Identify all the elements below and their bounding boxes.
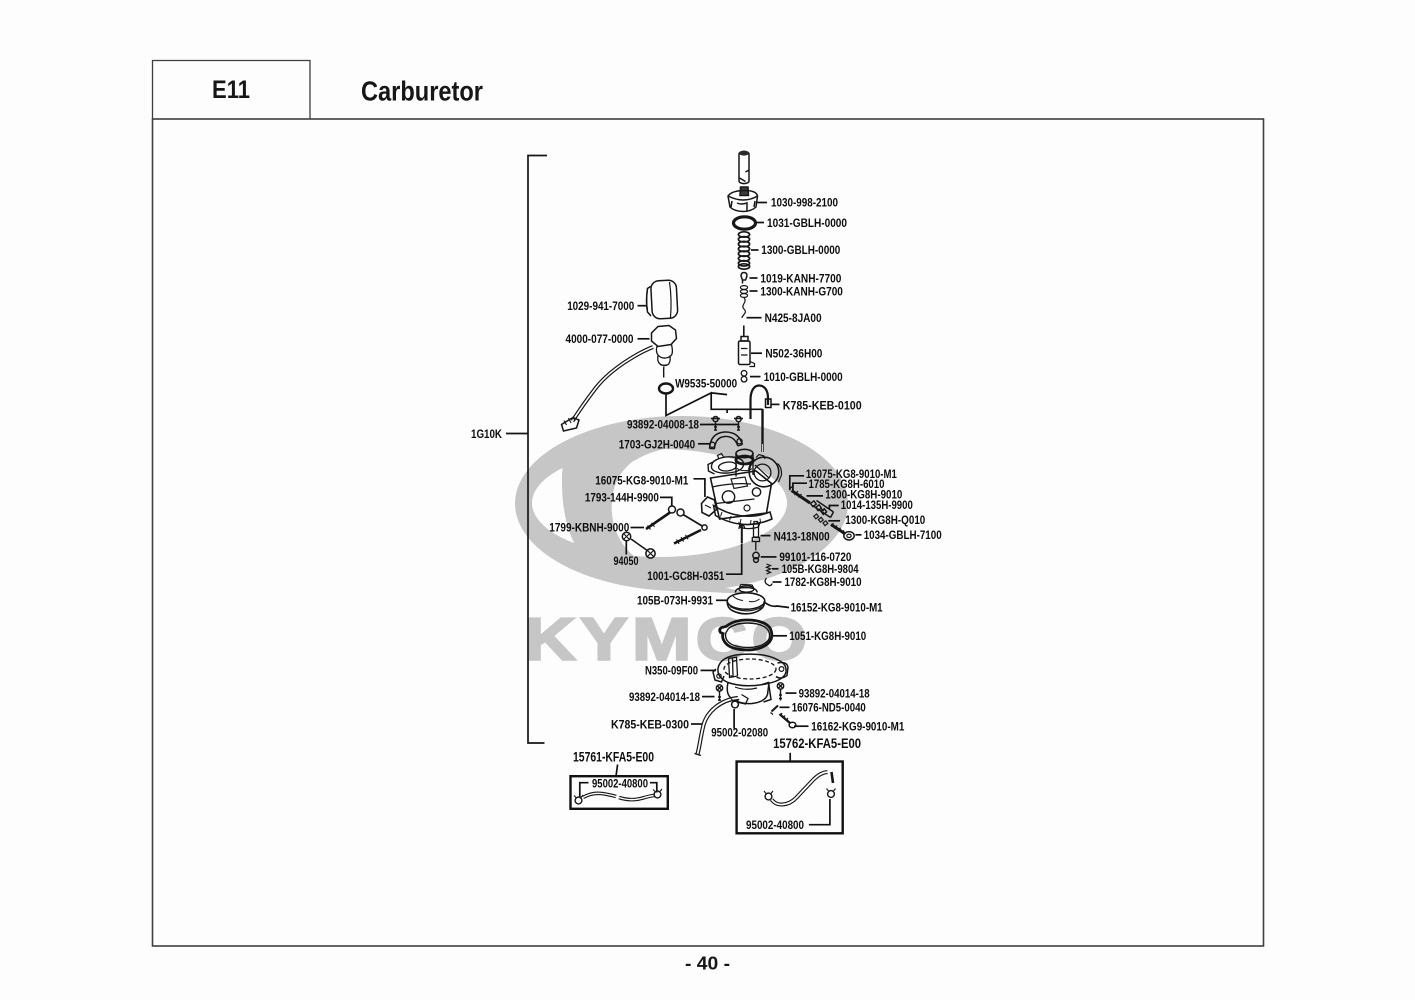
- svg-text:93892-04008-18: 93892-04008-18: [627, 418, 699, 432]
- svg-text:15761-KFA5-E00: 15761-KFA5-E00: [573, 749, 654, 765]
- svg-text:1782-KG8H-9010: 1782-KG8H-9010: [785, 575, 862, 589]
- svg-text:1300-KANH-G700: 1300-KANH-G700: [760, 284, 843, 298]
- svg-text:4000-077-0000: 4000-077-0000: [566, 332, 634, 346]
- svg-text:W9535-50000: W9535-50000: [675, 377, 737, 391]
- svg-text:1019-KANH-7700: 1019-KANH-7700: [760, 271, 841, 285]
- svg-text:1001-GC8H-0351: 1001-GC8H-0351: [647, 569, 724, 583]
- svg-text:16075-KG8-9010-M1: 16075-KG8-9010-M1: [595, 473, 688, 487]
- svg-text:Carburetor: Carburetor: [361, 76, 483, 107]
- svg-text:105B-073H-9931: 105B-073H-9931: [637, 594, 713, 608]
- svg-text:- 40 -: - 40 -: [685, 954, 730, 974]
- svg-text:95002-40800: 95002-40800: [746, 818, 804, 832]
- svg-text:93892-04014-18: 93892-04014-18: [629, 690, 700, 704]
- svg-text:16162-KG9-9010-M1: 16162-KG9-9010-M1: [811, 720, 904, 734]
- svg-text:N502-36H00: N502-36H00: [765, 346, 822, 360]
- svg-text:1793-144H-9900: 1793-144H-9900: [585, 491, 659, 505]
- svg-text:16076-ND5-0040: 16076-ND5-0040: [792, 701, 866, 715]
- svg-text:1034-GBLH-7100: 1034-GBLH-7100: [864, 528, 942, 542]
- svg-text:16152-KG8-9010-M1: 16152-KG8-9010-M1: [791, 601, 883, 615]
- svg-text:1703-GJ2H-0040: 1703-GJ2H-0040: [619, 438, 696, 452]
- svg-text:95002-02080: 95002-02080: [711, 725, 768, 739]
- svg-text:K785-KEB-0100: K785-KEB-0100: [783, 398, 862, 412]
- svg-text:1031-GBLH-0000: 1031-GBLH-0000: [767, 216, 847, 230]
- svg-text:1G10K: 1G10K: [471, 427, 502, 441]
- svg-text:1051-KG8H-9010: 1051-KG8H-9010: [789, 629, 866, 643]
- svg-text:N425-8JA00: N425-8JA00: [765, 311, 822, 325]
- svg-text:1300-KG8H-Q010: 1300-KG8H-Q010: [845, 513, 925, 527]
- svg-text:95002-40800: 95002-40800: [592, 776, 648, 790]
- svg-text:1300-GBLH-0000: 1300-GBLH-0000: [761, 243, 840, 257]
- svg-text:E11: E11: [212, 76, 250, 104]
- svg-text:1030-998-2100: 1030-998-2100: [771, 196, 838, 210]
- svg-text:1010-GBLH-0000: 1010-GBLH-0000: [764, 370, 843, 384]
- svg-text:1014-135H-9900: 1014-135H-9900: [841, 498, 913, 512]
- svg-text:94050: 94050: [614, 554, 639, 568]
- svg-text:1799-KBNH-9000: 1799-KBNH-9000: [549, 521, 629, 535]
- svg-text:N413-18N00: N413-18N00: [774, 530, 830, 544]
- svg-text:93892-04014-18: 93892-04014-18: [799, 686, 870, 700]
- svg-text:105B-KG8H-9804: 105B-KG8H-9804: [782, 562, 859, 576]
- svg-text:K785-KEB-0300: K785-KEB-0300: [611, 717, 689, 731]
- svg-text:15762-KFA5-E00: 15762-KFA5-E00: [773, 735, 861, 751]
- svg-text:N350-09F00: N350-09F00: [645, 664, 698, 678]
- svg-text:1029-941-7000: 1029-941-7000: [567, 299, 634, 313]
